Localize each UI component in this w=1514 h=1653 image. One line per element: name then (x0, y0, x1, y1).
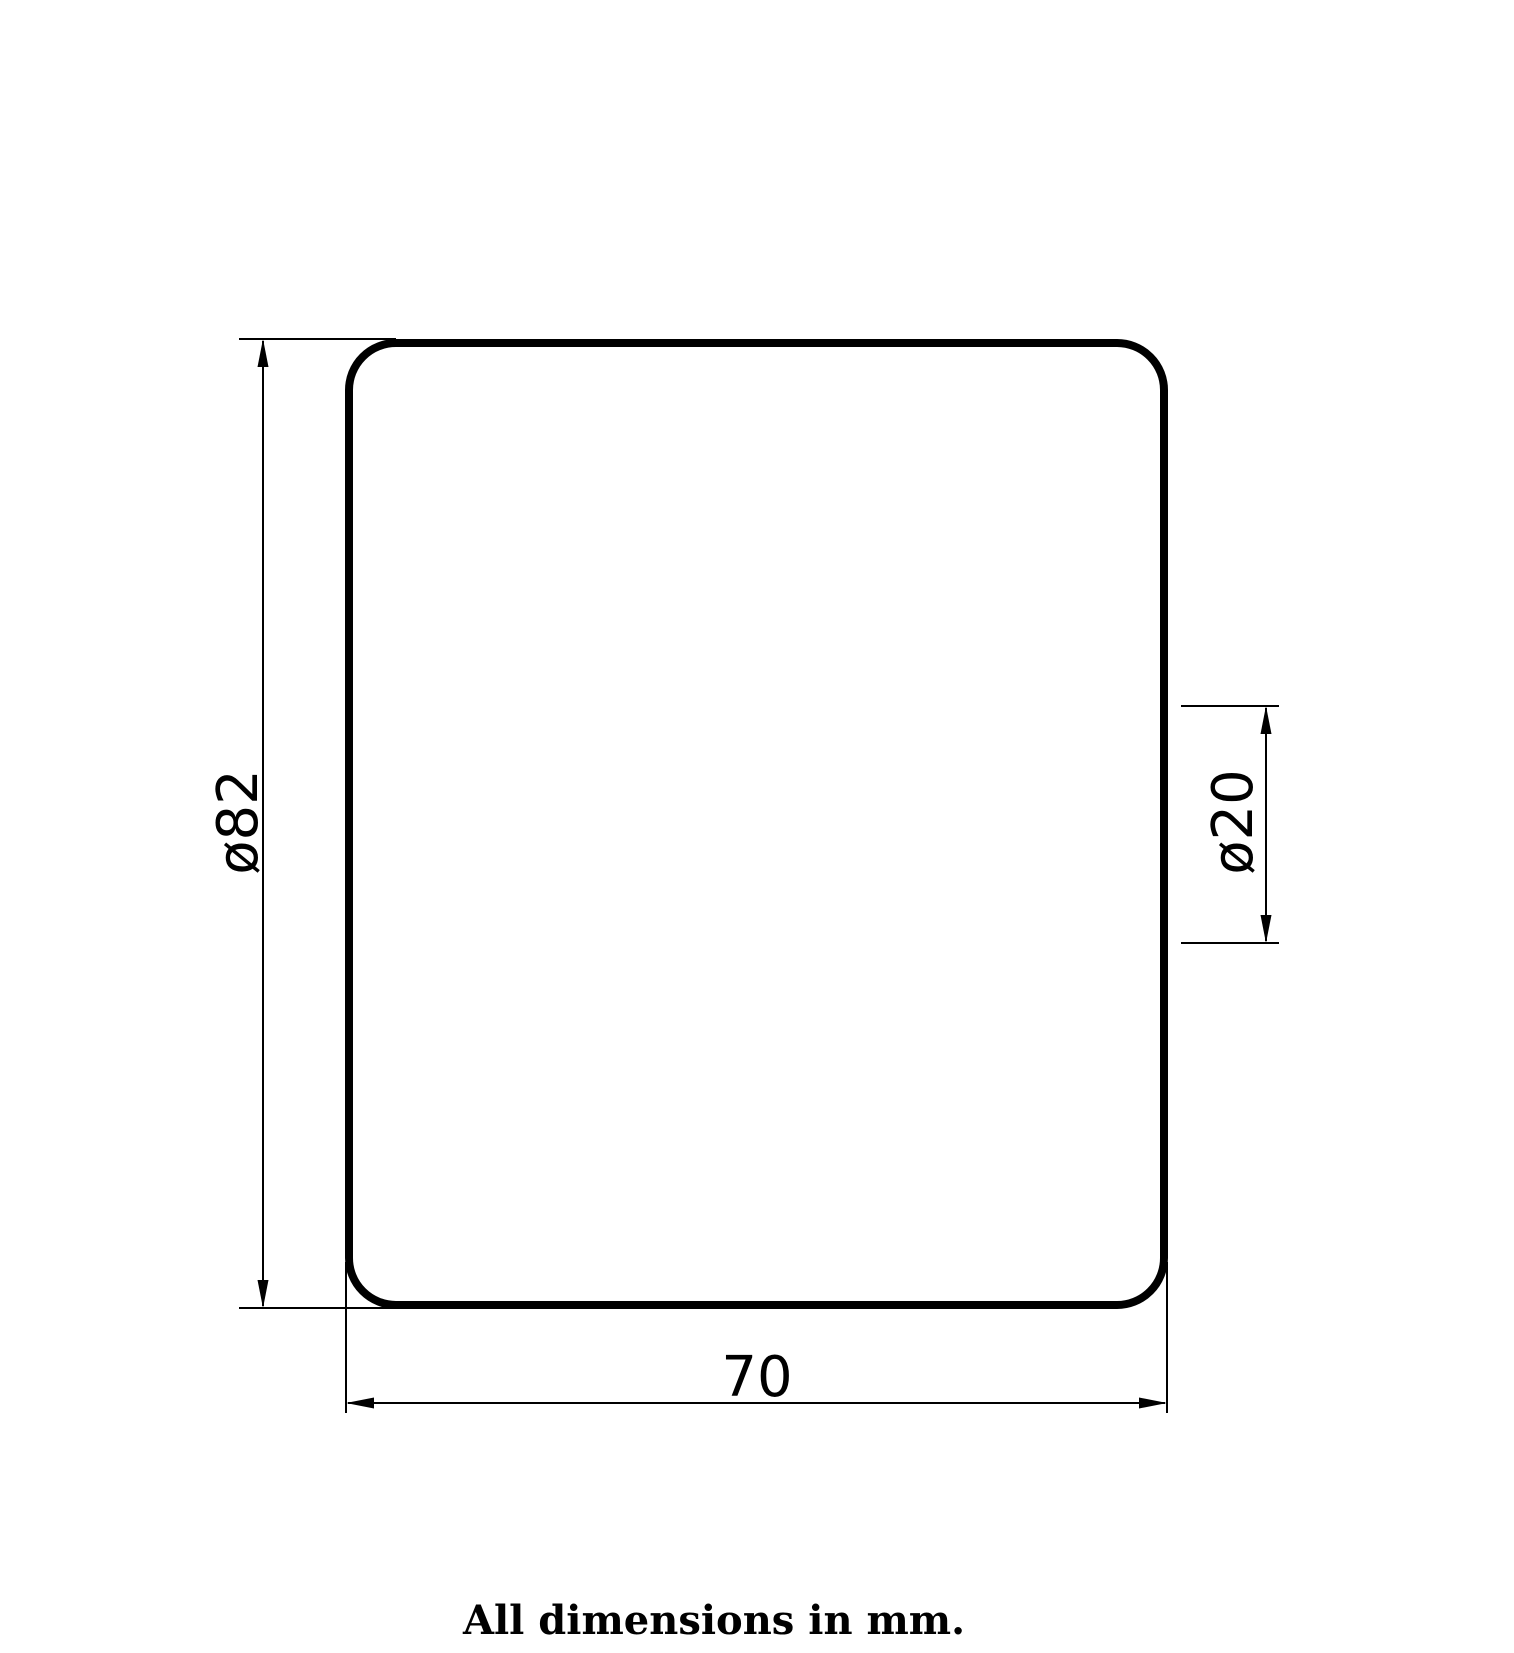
arrowhead-down-icon (1261, 915, 1272, 943)
part-outline (349, 343, 1164, 1305)
arrowhead-up-icon (1261, 706, 1272, 734)
dimension-drawing: ø82 ø20 70 All dimensions in mm. (0, 0, 1514, 1653)
arrowhead-right-icon (1139, 1398, 1167, 1409)
drawing-canvas: ø82 ø20 70 All dimensions in mm. (0, 0, 1514, 1653)
caption: All dimensions in mm. (462, 1597, 965, 1644)
arrowhead-up-icon (258, 339, 269, 367)
dim-bore-diameter: ø20 (1181, 706, 1279, 943)
dim-width-label: 70 (721, 1345, 792, 1410)
arrowhead-left-icon (346, 1398, 374, 1409)
arrowhead-down-icon (258, 1280, 269, 1308)
dim-overall-diameter-label: ø82 (206, 769, 271, 875)
dim-bore-diameter-label: ø20 (1201, 769, 1266, 875)
